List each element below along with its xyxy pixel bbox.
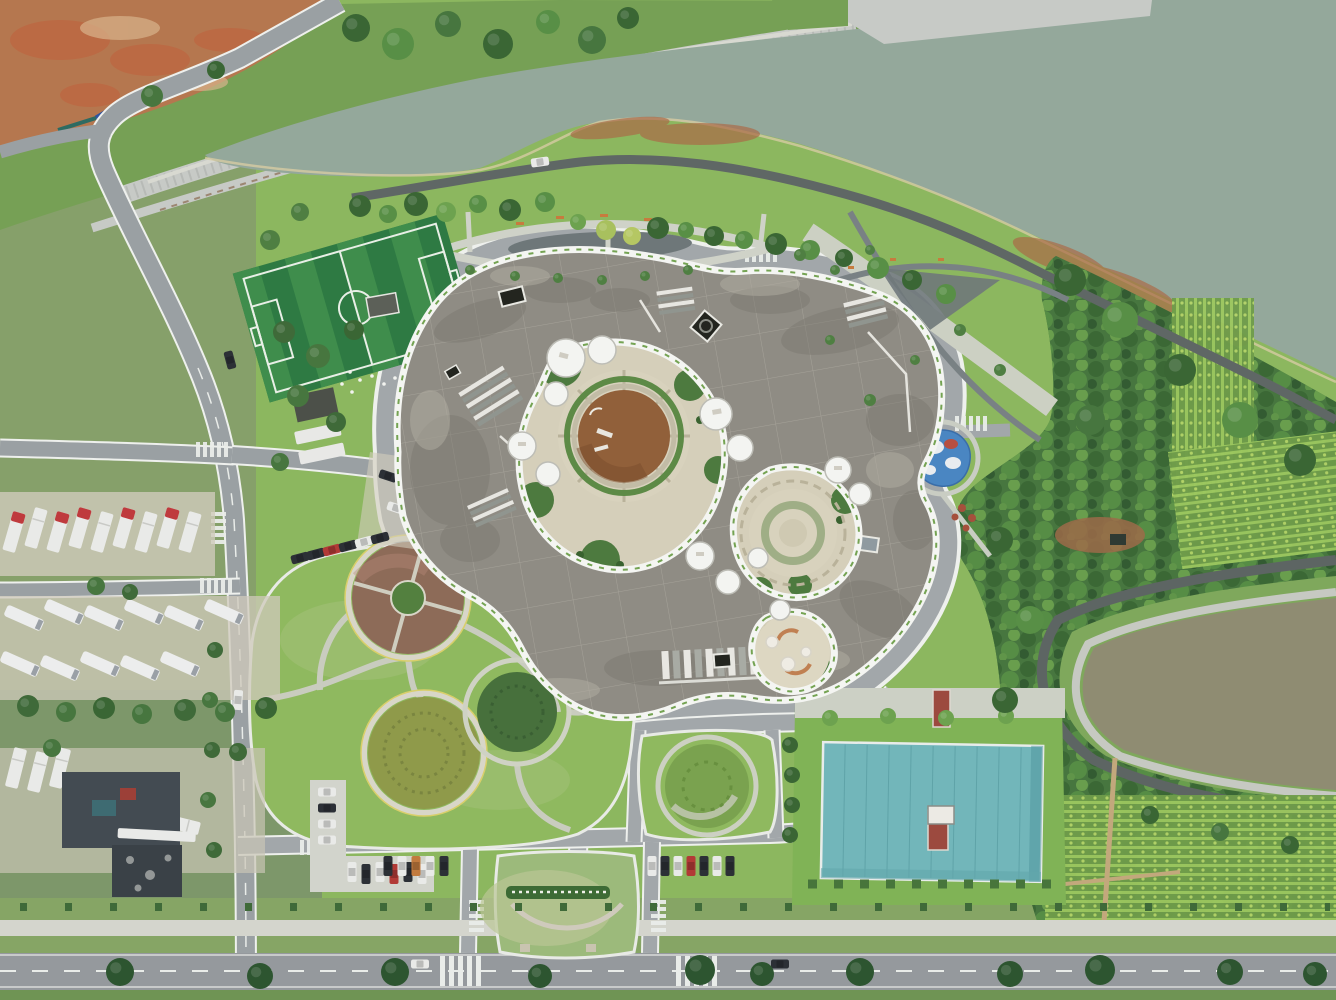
bus-lot — [0, 596, 280, 700]
aerial-scene — [0, 0, 1336, 1000]
courtyard-pond — [558, 370, 690, 502]
sidewalk — [0, 920, 1336, 936]
bare-patch — [1055, 517, 1145, 553]
second-island — [639, 730, 778, 839]
gatehouse — [366, 293, 399, 318]
flower-bed-olive — [361, 690, 487, 816]
t tarp — [1110, 534, 1126, 545]
median — [0, 990, 1336, 1000]
guard-hut — [928, 806, 954, 824]
truck-lot-north — [0, 492, 215, 576]
entrance-island — [480, 852, 639, 959]
main-boulevard — [0, 920, 1336, 1000]
aerial-photo — [0, 0, 1336, 1000]
